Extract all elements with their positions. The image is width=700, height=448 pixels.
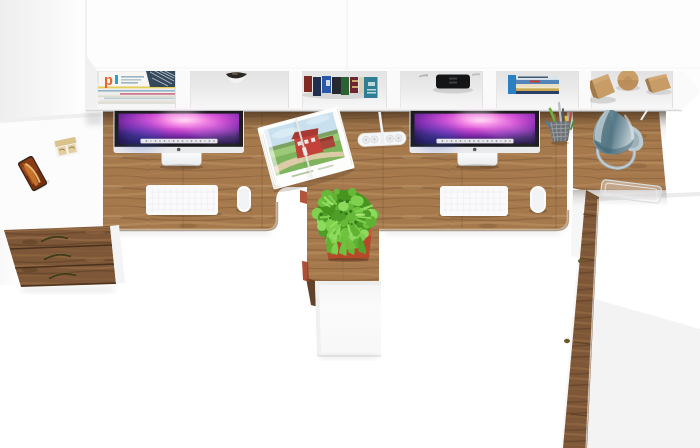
svg-text:p: p — [104, 73, 113, 89]
